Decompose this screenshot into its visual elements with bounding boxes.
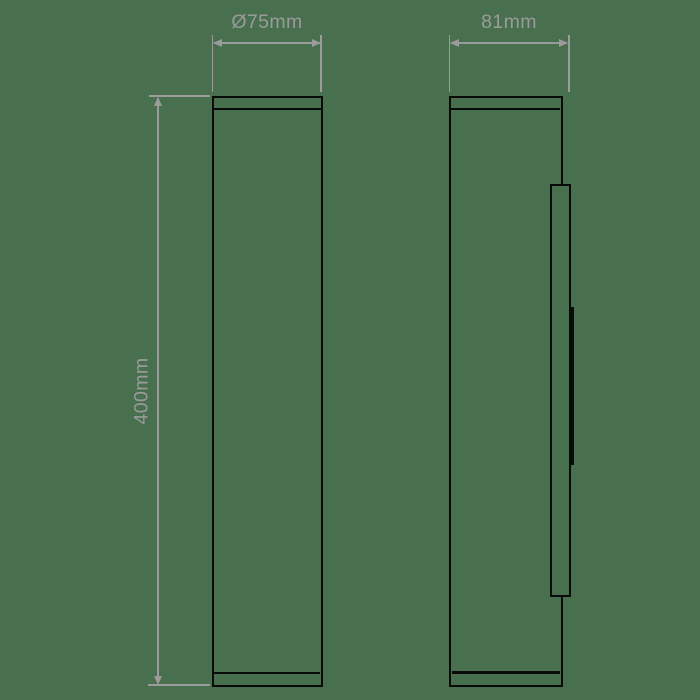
arrowhead-left-icon <box>450 39 459 47</box>
arrowhead-up-icon <box>154 97 162 106</box>
arrowhead-right-icon <box>312 39 321 47</box>
arrowhead-right-icon <box>559 39 568 47</box>
arrowhead-left-icon <box>213 39 222 47</box>
diameter-dimension-label: Ø75mm <box>211 13 323 33</box>
side-view-diffuser-bulge-line <box>571 307 574 465</box>
front-view-top-cap-line <box>214 108 321 111</box>
technical-drawing: Ø75mm 81mm 400mm <box>0 0 700 700</box>
depth-dimension-line <box>451 42 567 44</box>
depth-extension-line-right <box>568 35 570 92</box>
arrowhead-down-icon <box>154 676 162 685</box>
side-view-bottom-cap-line <box>452 671 560 674</box>
height-dimension-label: 400mm <box>132 357 152 424</box>
front-view-outline <box>212 96 324 687</box>
side-view-top-cap-line <box>451 108 560 111</box>
height-dimension-line <box>157 98 159 683</box>
side-view-outline <box>449 96 563 687</box>
side-view-diffuser-plate <box>550 184 571 597</box>
diameter-dimension-line <box>214 42 320 44</box>
depth-dimension-label: 81mm <box>448 13 570 33</box>
front-view-bottom-cap-line <box>214 672 320 675</box>
